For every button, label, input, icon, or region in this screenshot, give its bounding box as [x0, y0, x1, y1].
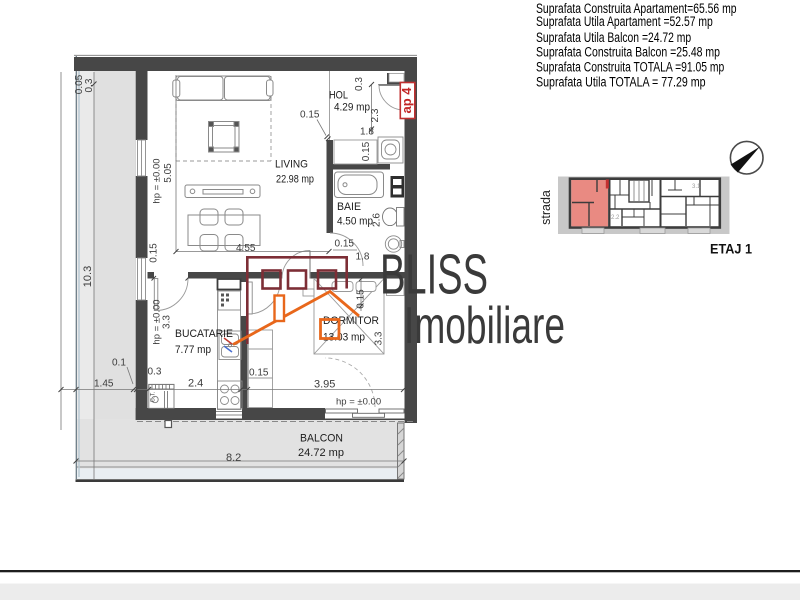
svg-text:3.3: 3.3 — [374, 331, 385, 345]
svg-text:0.15: 0.15 — [249, 368, 269, 379]
svg-text:HOL: HOL — [329, 90, 348, 102]
svg-text:Suprafata Construita TOTALA =9: Suprafata Construita TOTALA =91.05 mp — [536, 60, 724, 75]
svg-text:4.29 mp: 4.29 mp — [334, 102, 370, 114]
svg-text:0.3: 0.3 — [84, 78, 95, 92]
svg-text:Suprafata Utila TOTALA = 77.29: Suprafata Utila TOTALA = 77.29 mp — [536, 75, 706, 90]
svg-text:4.50 mp: 4.50 mp — [337, 216, 373, 228]
svg-text:24.72 mp: 24.72 mp — [298, 447, 344, 459]
svg-text:LIVING: LIVING — [275, 159, 308, 171]
svg-text:0.15: 0.15 — [149, 243, 160, 263]
svg-text:Suprafata Utila Apartament =52: Suprafata Utila Apartament =52.57 mp — [536, 14, 713, 29]
svg-text:10.3: 10.3 — [82, 266, 94, 287]
svg-text:3.3: 3.3 — [162, 315, 173, 329]
svg-text:0.15: 0.15 — [335, 239, 355, 250]
svg-text:Imobiliare: Imobiliare — [404, 297, 565, 355]
svg-text:hp = ±0.00: hp = ±0.00 — [152, 158, 163, 203]
svg-text:C.T.: C.T. — [151, 391, 157, 402]
svg-text:ETAJ 1: ETAJ 1 — [710, 242, 752, 257]
svg-text:1.45: 1.45 — [94, 379, 114, 390]
svg-text:22.98 mp: 22.98 mp — [276, 174, 314, 186]
svg-text:2.6: 2.6 — [372, 213, 383, 227]
svg-text:4.55: 4.55 — [236, 243, 256, 254]
svg-text:BUCATARIE: BUCATARIE — [175, 328, 233, 340]
svg-text:3.1: 3.1 — [692, 184, 701, 190]
svg-text:2.4: 2.4 — [188, 378, 203, 390]
svg-text:5.05: 5.05 — [163, 163, 174, 183]
svg-text:0.15: 0.15 — [356, 289, 367, 309]
svg-text:BAIE: BAIE — [337, 201, 361, 213]
svg-text:1.8: 1.8 — [356, 252, 370, 263]
svg-text:7.77 mp: 7.77 mp — [175, 344, 211, 356]
svg-text:0.15: 0.15 — [361, 141, 372, 161]
svg-text:0.3: 0.3 — [354, 77, 365, 91]
svg-text:DORMITOR: DORMITOR — [323, 315, 379, 327]
svg-text:hp = ±0.00: hp = ±0.00 — [336, 397, 381, 408]
svg-text:2.2: 2.2 — [611, 215, 620, 221]
svg-text:0.3: 0.3 — [148, 367, 162, 378]
svg-text:strada: strada — [539, 190, 553, 225]
svg-text:2.3: 2.3 — [370, 108, 381, 122]
svg-text:0.1: 0.1 — [112, 358, 126, 369]
svg-text:8.2: 8.2 — [226, 452, 241, 464]
svg-text:Suprafata Construita Balcon =2: Suprafata Construita Balcon =25.48 mp — [536, 45, 720, 60]
svg-text:Suprafata Utila Balcon =24.72: Suprafata Utila Balcon =24.72 mp — [536, 30, 691, 45]
svg-text:ap 4: ap 4 — [399, 87, 414, 114]
svg-text:1.8: 1.8 — [360, 127, 374, 138]
svg-text:0.15: 0.15 — [300, 110, 320, 121]
svg-text:BALCON: BALCON — [300, 433, 343, 445]
svg-text:3.95: 3.95 — [314, 379, 335, 391]
